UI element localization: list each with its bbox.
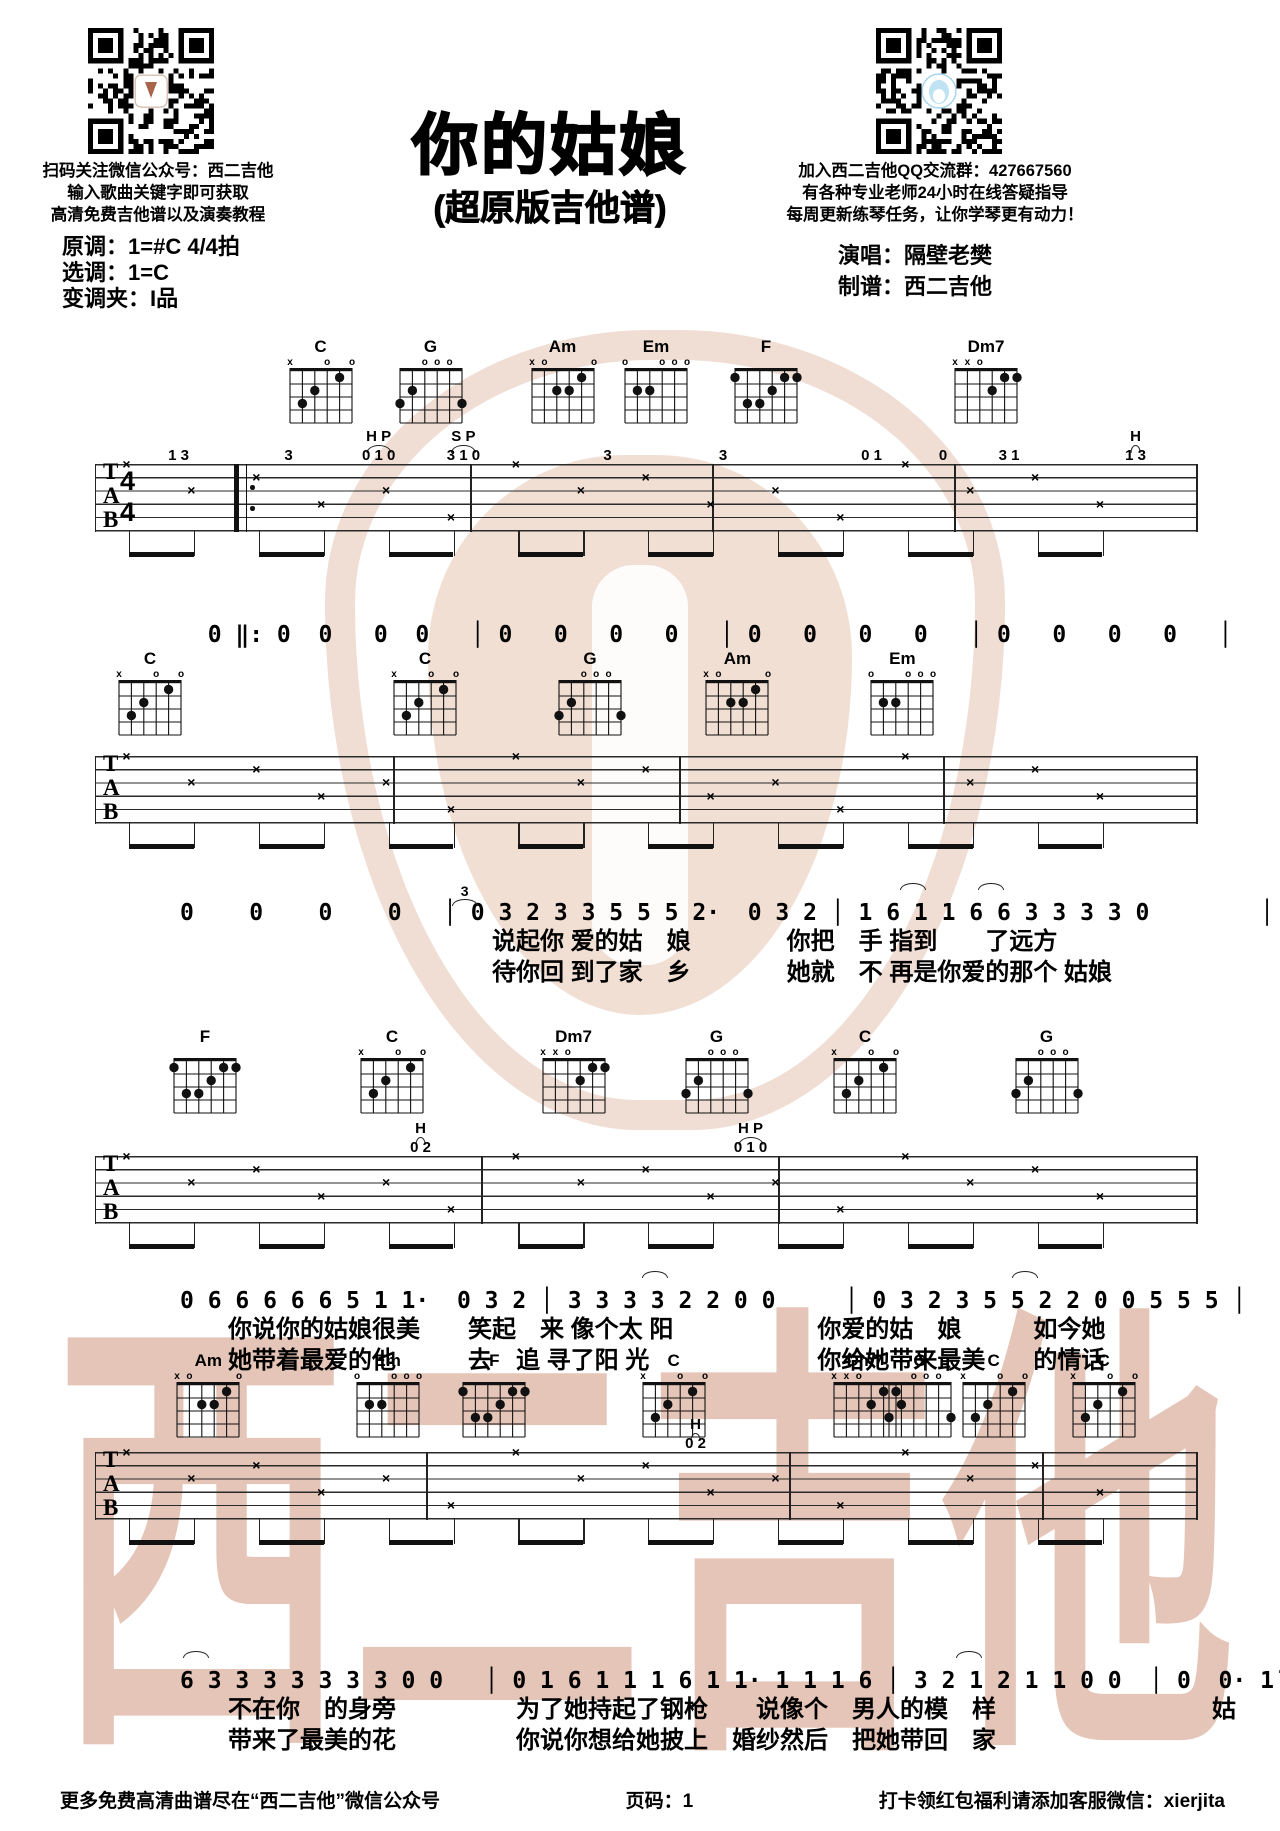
strum-x: × (122, 749, 130, 763)
chord-c: Cxoo (388, 650, 462, 745)
note-stem (324, 1519, 325, 1544)
note-stem (973, 1519, 974, 1544)
beam (389, 1244, 454, 1249)
chord-name: C (355, 1028, 429, 1046)
svg-text:o: o (395, 1047, 401, 1058)
note-stem (713, 531, 714, 556)
tie-mark (900, 883, 926, 890)
strum-x: × (901, 749, 909, 763)
strum-x: × (577, 1471, 585, 1485)
tab-annotation: 3 1 (999, 447, 1020, 464)
tab-annotation: 0 1 0 (362, 447, 395, 464)
chord-grid: ooo (883, 1370, 957, 1442)
strum-x: × (382, 775, 390, 789)
chord-g: Gooo (394, 338, 468, 433)
repeat-dots (250, 485, 255, 490)
vocal-row: 30 0 0 0 │ 0 3 2 3 3 5 5 5 2· 0 3 2 │ 1 … (95, 900, 1215, 988)
chord-name: G (553, 650, 627, 668)
beam (1038, 552, 1103, 557)
tab-staff: TAB44××××××××××××××××1 33H P0 1 0S P3 1 … (95, 464, 1197, 532)
strum-x: × (577, 775, 585, 789)
page-number: 页码：1 (626, 1786, 694, 1813)
svg-text:o: o (153, 669, 159, 680)
strum-x: × (1031, 1162, 1039, 1176)
svg-text:o: o (1050, 1047, 1056, 1058)
beam (259, 1540, 324, 1545)
note-stem (843, 1223, 844, 1248)
chord-name: F (729, 338, 803, 356)
strum-x: × (642, 470, 650, 484)
strum-x: × (966, 1471, 974, 1485)
strum-x: × (836, 802, 844, 816)
beam (129, 552, 194, 557)
tab-clef-letter: T (103, 1152, 120, 1176)
note-stem (713, 1223, 714, 1248)
page-footer: 更多免费高清曲谱尽在“西二吉他”微信公众号 页码：1 打卡领红包福利请添加客服微… (60, 1786, 1225, 1813)
note-stem (973, 823, 974, 848)
beam (129, 1244, 194, 1249)
note-stem (583, 1519, 584, 1544)
strum-x: × (966, 775, 974, 789)
beam (518, 1244, 583, 1249)
strum-x: × (252, 470, 260, 484)
barline (789, 1452, 791, 1520)
strum-x: × (252, 1162, 260, 1176)
strum-x: × (707, 789, 715, 803)
chord-dm7: Dm7xxo (537, 1028, 611, 1123)
chord-name: G (680, 1028, 754, 1046)
strum-x: × (966, 1175, 974, 1189)
beam (259, 552, 324, 557)
chord-name: G (394, 338, 468, 356)
chord-name: C (828, 1028, 902, 1046)
tab-clef: TAB (103, 752, 120, 824)
barline (393, 756, 395, 824)
vocal-row: 6 3 3 3 3 3 3 3 0 0 │ 0 1 6 1 1 1 6 1 1·… (95, 1668, 1215, 1756)
chord-f: F (168, 1028, 242, 1123)
note-stem (454, 1223, 455, 1248)
svg-text:o: o (178, 669, 184, 680)
svg-text:x: x (529, 357, 535, 368)
strum-x: × (317, 1189, 325, 1203)
chord-name: Em (865, 650, 939, 668)
strum-x: × (901, 1149, 909, 1163)
repeat-start-barline (234, 464, 247, 532)
tab-clef-letter: T (103, 460, 120, 484)
chord-grid (457, 1370, 531, 1442)
tab-annotation: 0 (939, 447, 947, 464)
tab-clef-letter: B (103, 1200, 120, 1224)
svg-text:o: o (428, 669, 434, 680)
chord-am: Amxoo (700, 650, 774, 745)
tab-clef: TAB (103, 1152, 120, 1224)
note-stem (713, 823, 714, 848)
strum-x: × (901, 457, 909, 471)
guitar-tab-sheet: 西二吉他 扫码关注微信公众号：西二吉他 输入歌曲关键字即可获取 高清免费吉他谱以… (0, 0, 1280, 1831)
tie-mark (956, 1651, 982, 1658)
svg-text:o: o (581, 669, 587, 680)
beam (259, 844, 324, 849)
number-row: 6 3 3 3 3 3 3 3 0 0 │ 0 1 6 1 1 1 6 1 1·… (95, 1668, 1215, 1694)
svg-text:x: x (540, 1047, 546, 1058)
svg-text:o: o (659, 357, 665, 368)
tab-clef-letter: B (103, 800, 120, 824)
chord-grid (729, 356, 803, 428)
tab-clef-letter: T (103, 1448, 120, 1472)
note-stem (454, 823, 455, 848)
beam (908, 552, 973, 557)
chord-grid: xoo (1067, 1370, 1141, 1442)
svg-text:o: o (324, 357, 330, 368)
note-stem (713, 1519, 714, 1544)
note-stem (843, 531, 844, 556)
note-stem (1103, 1223, 1104, 1248)
note-stem (583, 823, 584, 848)
strum-x: × (836, 1498, 844, 1512)
tie-mark (978, 883, 1004, 890)
tab-annotation: 3 (284, 447, 292, 464)
tab-clef-letter: A (103, 484, 120, 508)
beam (908, 844, 973, 849)
strum-x: × (317, 1485, 325, 1499)
svg-text:o: o (590, 357, 596, 368)
strum-x: × (642, 762, 650, 776)
note-stem (194, 823, 195, 848)
strum-x: × (642, 1458, 650, 1472)
chord-name: C (113, 650, 187, 668)
note-stem (194, 531, 195, 556)
chord-name: F (168, 1028, 242, 1046)
beam (648, 844, 713, 849)
beam (518, 552, 583, 557)
note-stem (194, 1519, 195, 1544)
chord-grid: oooo (351, 1370, 425, 1442)
tab-clef: TAB (103, 460, 120, 532)
strum-x: × (122, 1445, 130, 1459)
svg-text:x: x (552, 1047, 558, 1058)
note-stem (324, 531, 325, 556)
barline (1042, 1452, 1044, 1520)
strum-x: × (317, 789, 325, 803)
tab-annotation: 0 1 0 (734, 1139, 767, 1156)
strum-x: × (771, 1175, 779, 1189)
chord-g: Gooo (553, 650, 627, 745)
note-stem (973, 531, 974, 556)
lyric-line: 带来了最美的花 你说你想给她披上 婚纱然后 把她带回 家 (95, 1725, 1215, 1756)
svg-text:o: o (893, 1047, 899, 1058)
note-stem (454, 531, 455, 556)
strum-x: × (836, 1202, 844, 1216)
strum-x: × (577, 483, 585, 497)
chord-grid: xoo (284, 356, 358, 428)
chord-g: Gooo (1010, 1028, 1084, 1123)
svg-text:o: o (348, 357, 354, 368)
beam (1038, 844, 1103, 849)
strum-x: × (1096, 497, 1104, 511)
svg-text:x: x (391, 669, 397, 680)
tie-mark: 3 (452, 883, 478, 906)
strum-x: × (317, 497, 325, 511)
barline (954, 464, 956, 532)
chord-grid: xoo (828, 1046, 902, 1118)
tab-annotation: 0 2 (410, 1139, 431, 1156)
strum-x: × (1096, 1485, 1104, 1499)
strum-x: × (512, 1149, 520, 1163)
barline (1196, 464, 1198, 532)
beam (908, 1540, 973, 1545)
tab-annotation: 1 3 (1125, 447, 1146, 464)
note-stem (194, 1223, 195, 1248)
barline (1196, 1452, 1198, 1520)
note-stem (583, 531, 584, 556)
note-stem (583, 1223, 584, 1248)
tie-mark (183, 1651, 209, 1658)
tie-mark (1012, 1271, 1038, 1278)
strum-x: × (966, 483, 974, 497)
svg-text:x: x (287, 357, 293, 368)
tab-annotation: 3 1 0 (447, 447, 480, 464)
svg-text:x: x (965, 357, 971, 368)
strum-x: × (447, 802, 455, 816)
svg-text:o: o (622, 357, 628, 368)
strum-x: × (252, 1458, 260, 1472)
strum-x: × (447, 510, 455, 524)
chord-grid: xoo (526, 356, 600, 428)
strum-x: × (1096, 789, 1104, 803)
time-signature: 44 (120, 466, 135, 528)
chord-name: G (1010, 1028, 1084, 1046)
chord-grid: xoo (700, 668, 774, 740)
tab-annotation: 0 1 (861, 447, 882, 464)
strum-x: × (512, 457, 520, 471)
svg-text:x: x (358, 1047, 364, 1058)
beam (908, 1244, 973, 1249)
footer-right: 打卡领红包福利请添加客服微信：xierjita (879, 1786, 1225, 1813)
tab-staff: TAB××××××××××××××××H0 2H P0 1 0 (95, 1156, 1197, 1224)
chord-grid: xoo (355, 1046, 429, 1118)
tab-annotation: 0 2 (685, 1435, 706, 1452)
chord-g: Gooo (680, 1028, 754, 1123)
chord-name: Dm7 (949, 338, 1023, 356)
svg-text:o: o (593, 669, 599, 680)
strum-x: × (122, 1149, 130, 1163)
lyric-line: 你说你的姑娘很美 笑起 来 像个太 阳 你爱的姑 娘 如今她 (95, 1314, 1215, 1345)
barline (470, 464, 472, 532)
svg-text:o: o (868, 669, 874, 680)
strum-x: × (447, 1202, 455, 1216)
tab-annotation: 1 3 (168, 447, 189, 464)
tab-annotation: 3 (603, 447, 611, 464)
chord-name: C (388, 650, 462, 668)
svg-text:o: o (977, 357, 983, 368)
chord-grid: xoo (957, 1370, 1031, 1442)
svg-text:x: x (704, 669, 710, 680)
chord-name: Am (526, 338, 600, 356)
lyric-line: 说起你 爱的姑 娘 你把 手 指到 了远方 (95, 926, 1215, 957)
svg-text:o: o (732, 1047, 738, 1058)
time-signature-digit: 4 (120, 497, 135, 528)
beam (1038, 1540, 1103, 1545)
beam (778, 1540, 843, 1545)
chord-c: Cxoo (828, 1028, 902, 1123)
chord-grid: xxo (949, 356, 1023, 428)
strum-x: × (1031, 762, 1039, 776)
beam (518, 1540, 583, 1545)
svg-text:o: o (716, 669, 722, 680)
chord-grid: oooo (619, 356, 693, 428)
note-stem (324, 823, 325, 848)
number-row: 0 ‖: 0 0 0 0 │ 0 0 0 0 │ 0 0 0 0 │ 0 0 0… (95, 622, 1215, 648)
svg-text:o: o (421, 357, 427, 368)
strum-x: × (707, 1485, 715, 1499)
note-stem (324, 1223, 325, 1248)
strum-x: × (512, 1445, 520, 1459)
strum-x: × (187, 1175, 195, 1189)
note-stem (843, 1519, 844, 1544)
svg-text:o: o (541, 357, 547, 368)
svg-text:o: o (906, 669, 912, 680)
beam (778, 552, 843, 557)
beam (648, 1244, 713, 1249)
footer-left: 更多免费高清曲谱尽在“西二吉他”微信公众号 (60, 1786, 440, 1813)
svg-text:x: x (116, 669, 122, 680)
svg-text:o: o (434, 357, 440, 368)
chord-f: F (729, 338, 803, 433)
strum-x: × (447, 1498, 455, 1512)
tab-clef: TAB (103, 1448, 120, 1520)
svg-text:x: x (831, 1047, 837, 1058)
note-stem (454, 1519, 455, 1544)
svg-text:x: x (952, 357, 958, 368)
chord-name: Am (700, 650, 774, 668)
vocal-row: 0 6 6 6 6 6 5 1 1· 0 3 2 │ 3 3 3 3 2 2 0… (95, 1288, 1215, 1376)
chord-grid: xxo (537, 1046, 611, 1118)
strum-x: × (1096, 1189, 1104, 1203)
tab-clef-letter: A (103, 1176, 120, 1200)
chord-dm7: Dm7xxo (949, 338, 1023, 433)
svg-text:o: o (918, 669, 924, 680)
tab-staff: TAB×××××××××××××××× (95, 756, 1197, 824)
vocal-row: 0 ‖: 0 0 0 0 │ 0 0 0 0 │ 0 0 0 0 │ 0 0 0… (95, 622, 1215, 648)
lyric-line: 待你回 到了家 乡 她就 不 再是你爱的那个 姑娘 (95, 957, 1215, 988)
strum-x: × (577, 1175, 585, 1189)
strum-x: × (187, 775, 195, 789)
beam (129, 1540, 194, 1545)
chord-grid: ooo (1010, 1046, 1084, 1118)
beam (778, 844, 843, 849)
strum-x: × (122, 457, 130, 471)
tab-clef-letter: B (103, 1496, 120, 1520)
svg-text:o: o (720, 1047, 726, 1058)
beam (389, 1540, 454, 1545)
chord-c: Cxoo (355, 1028, 429, 1123)
strum-x: × (382, 1471, 390, 1485)
chord-grid: ooo (553, 668, 627, 740)
note-stem (843, 823, 844, 848)
number-row: 0 6 6 6 6 6 5 1 1· 0 3 2 │ 3 3 3 3 2 2 0… (95, 1288, 1215, 1314)
strum-x: × (382, 1175, 390, 1189)
beam (1038, 1244, 1103, 1249)
tab-clef-letter: B (103, 508, 120, 532)
strum-x: × (642, 1162, 650, 1176)
barline (1196, 1156, 1198, 1224)
strum-x: × (836, 510, 844, 524)
strum-x: × (382, 483, 390, 497)
chord-grid: xoo (113, 668, 187, 740)
tab-clef-letter: T (103, 752, 120, 776)
tie-mark (642, 1271, 668, 1278)
tab-clef-letter: A (103, 776, 120, 800)
chord-em: Emoooo (619, 338, 693, 433)
strum-x: × (1031, 1458, 1039, 1472)
strum-x: × (512, 749, 520, 763)
chord-grid: xoo (171, 1370, 245, 1442)
chord-em: Emoooo (865, 650, 939, 745)
beam (648, 1540, 713, 1545)
svg-text:o: o (1037, 1047, 1043, 1058)
barline (679, 756, 681, 824)
beam (648, 552, 713, 557)
beam (778, 1244, 843, 1249)
chord-grid: ooo (394, 356, 468, 428)
svg-text:o: o (420, 1047, 426, 1058)
tab-clef-letter: A (103, 1472, 120, 1496)
strum-x: × (771, 483, 779, 497)
svg-text:o: o (684, 357, 690, 368)
svg-text:o: o (868, 1047, 874, 1058)
lyric-line: 不在你 的身旁 为了她持起了钢枪 说像个 男人的模 样 姑 (95, 1694, 1215, 1725)
barline (943, 756, 945, 824)
chord-name: Dm7 (537, 1028, 611, 1046)
svg-text:o: o (453, 669, 459, 680)
strum-x: × (1031, 470, 1039, 484)
beam (389, 552, 454, 557)
chord-name: Em (619, 338, 693, 356)
beam (259, 1244, 324, 1249)
svg-text:o: o (930, 669, 936, 680)
strum-x: × (187, 483, 195, 497)
chord-grid: xoo (388, 668, 462, 740)
beam (389, 844, 454, 849)
strum-x: × (901, 1445, 909, 1459)
chord-grid: oooo (865, 668, 939, 740)
svg-text:o: o (606, 669, 612, 680)
lyric-line: 她带着最爱的他 去 追 寻了阳 光 你给她带来最美 的情话 (95, 1345, 1215, 1376)
strum-x: × (252, 762, 260, 776)
barline (1196, 756, 1198, 824)
svg-text:o: o (765, 669, 771, 680)
svg-text:o: o (564, 1047, 570, 1058)
chord-name: C (284, 338, 358, 356)
strum-x: × (187, 1471, 195, 1485)
barline (426, 1452, 428, 1520)
chord-am: Amxoo (526, 338, 600, 433)
svg-text:o: o (446, 357, 452, 368)
note-stem (973, 1223, 974, 1248)
barline (481, 1156, 483, 1224)
tab-staff: TAB××××××××××××××××H0 2 (95, 1452, 1197, 1520)
svg-text:o: o (1062, 1047, 1068, 1058)
strum-x: × (771, 1471, 779, 1485)
chord-c: Cxoo (284, 338, 358, 433)
tab-annotation: 3 (719, 447, 727, 464)
note-stem (1103, 531, 1104, 556)
chord-c: Cxoo (113, 650, 187, 745)
beam (518, 844, 583, 849)
strum-x: × (771, 775, 779, 789)
svg-text:o: o (707, 1047, 713, 1058)
strum-x: × (707, 497, 715, 511)
